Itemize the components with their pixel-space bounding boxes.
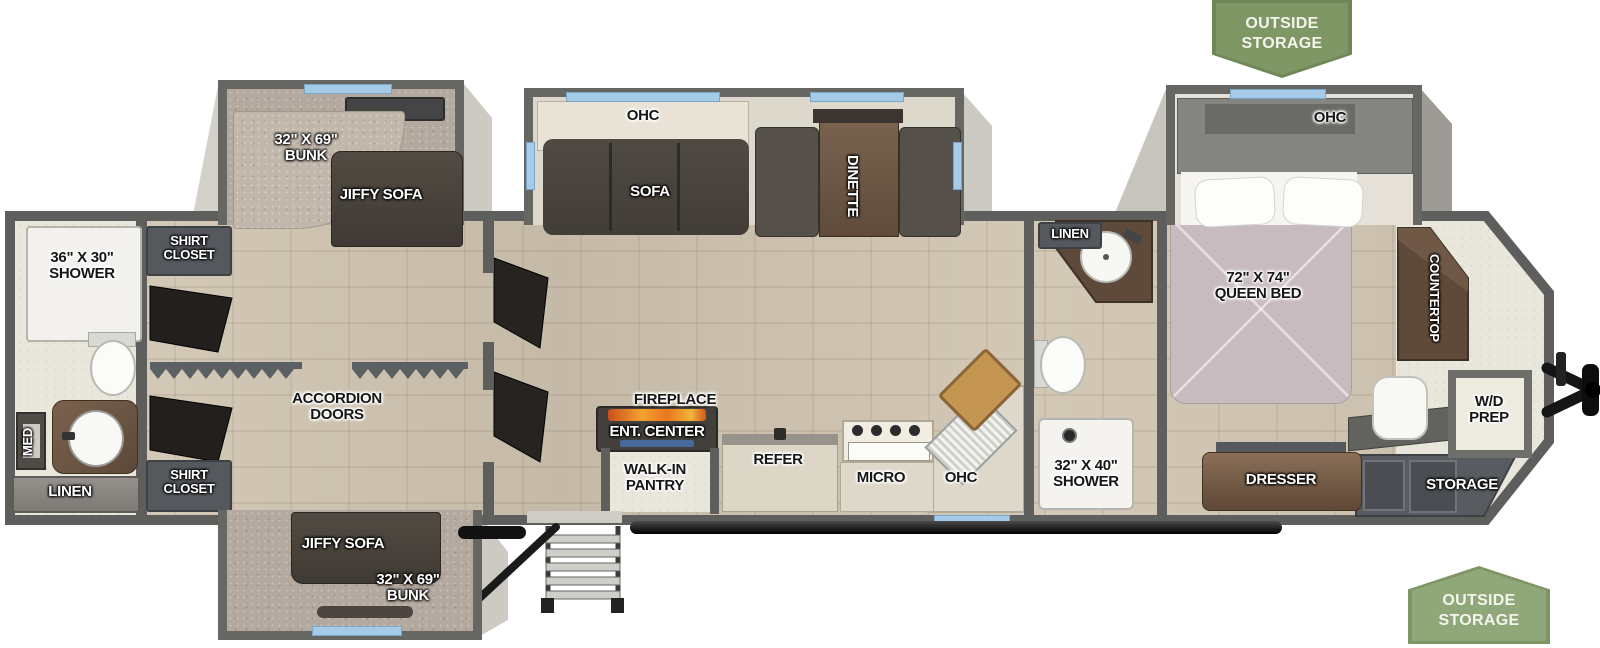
entry-threshold xyxy=(527,511,622,523)
wedge-bedslide-right xyxy=(1420,88,1452,220)
accordion-doors-icon xyxy=(150,362,468,379)
living-ohc-label: OHC xyxy=(593,108,693,124)
bunkroom-doors-icon xyxy=(494,258,548,462)
living-slide xyxy=(524,88,964,225)
dresser-label: DRESSER xyxy=(1211,472,1351,488)
oven-door xyxy=(848,442,930,461)
rear-shower-label: 36" X 30" SHOWER xyxy=(27,250,137,282)
bunk-top-window xyxy=(304,84,392,94)
wall-midbath-right xyxy=(1157,217,1167,517)
rear-sink xyxy=(68,410,124,467)
living-window-side-right xyxy=(953,142,962,190)
stove-burner-3 xyxy=(890,425,901,436)
bunk-bottom-mattress-edge xyxy=(317,606,413,618)
shirt-closet-bottom-label: SHIRT CLOSET xyxy=(139,468,239,496)
fireplace-label: FIREPLACE xyxy=(615,392,735,408)
queen-bed-label: 72" X 74" QUEEN BED xyxy=(1188,270,1328,302)
rear-shower xyxy=(26,226,142,342)
rear-linen-label: LINEN xyxy=(20,484,120,500)
stove-burner-2 xyxy=(871,425,882,436)
shirt-closet-top-label: SHIRT CLOSET xyxy=(139,234,239,262)
dinette-label: DINETTE xyxy=(838,130,860,242)
outside-storage-top-label: OUTSIDE STORAGE xyxy=(1242,14,1323,54)
med-label: MED xyxy=(21,414,41,470)
wedge-livingslide-right xyxy=(962,92,992,220)
bunk-bottom-sofa-label: JIFFY SOFA xyxy=(283,536,403,552)
mid-shower-label: 32" X 40" SHOWER xyxy=(1026,458,1146,490)
awning-rail xyxy=(630,521,1282,534)
pantry-label: WALK-IN PANTRY xyxy=(595,462,715,494)
mid-shower-drain-icon xyxy=(1062,428,1077,443)
rear-toilet xyxy=(90,340,136,396)
bunk-top-label: 32" X 69" BUNK xyxy=(246,132,366,164)
living-window-right xyxy=(810,92,904,102)
living-window-side-left xyxy=(526,142,535,190)
bunk-bottom-window xyxy=(312,626,402,636)
fireplace-flame-icon xyxy=(608,409,706,421)
kitchen-ohc-label: OHC xyxy=(911,470,1011,486)
bedroom-sink xyxy=(1372,376,1428,440)
pillow-left xyxy=(1194,176,1276,228)
mid-toilet xyxy=(1040,336,1086,394)
refrigerator-handle-icon xyxy=(774,428,786,440)
dinette-table-cap xyxy=(813,109,903,123)
ent-center-accent xyxy=(620,440,694,447)
wall-bunkroom-seg1 xyxy=(483,217,494,273)
wedge-bunkslide-left xyxy=(192,86,218,220)
dinette-bench-right xyxy=(899,127,961,237)
living-sofa-label: SOFA xyxy=(600,184,700,200)
countertop-label: COUNTERTOP xyxy=(1421,238,1441,358)
wd-prep-label: W/D PREP xyxy=(1449,394,1529,426)
storage-label: STORAGE xyxy=(1402,477,1522,493)
stove-burner-1 xyxy=(852,425,863,436)
dinette-bench-left xyxy=(755,127,819,237)
stove-burner-4 xyxy=(909,425,920,436)
bedroom-window xyxy=(1230,89,1326,99)
rv-floorplan: OUTSIDE STORAGE OUTSIDE STORAGE 36" X 30… xyxy=(0,0,1600,648)
bedroom-ohc-label: OHC xyxy=(1280,110,1380,126)
bunk-bottom-label: 32" X 69" BUNK xyxy=(348,572,468,604)
outside-storage-bottom-label: OUTSIDE STORAGE xyxy=(1439,591,1520,631)
grab-handle-icon xyxy=(458,526,526,539)
bedroom-slide xyxy=(1166,85,1422,225)
hitch-icon xyxy=(1547,352,1600,416)
mid-linen-label: LINEN xyxy=(1035,227,1105,241)
wall-bunkroom-seg3 xyxy=(483,462,494,517)
queen-bed xyxy=(1170,214,1352,404)
wall-bunkroom-seg2 xyxy=(483,342,494,390)
bunk-top-sofa-label: JIFFY SOFA xyxy=(321,187,441,203)
ent-center-label: ENT. CENTER xyxy=(587,424,727,440)
living-window-left xyxy=(566,92,720,102)
accordion-doors-label: ACCORDION DOORS xyxy=(267,391,407,423)
wedge-bunkslide-right xyxy=(464,84,492,220)
pillow-right xyxy=(1282,176,1364,228)
refer-label: REFER xyxy=(718,452,838,468)
wedge-bedslide-left xyxy=(1112,89,1166,220)
rear-faucet-icon xyxy=(62,432,75,440)
